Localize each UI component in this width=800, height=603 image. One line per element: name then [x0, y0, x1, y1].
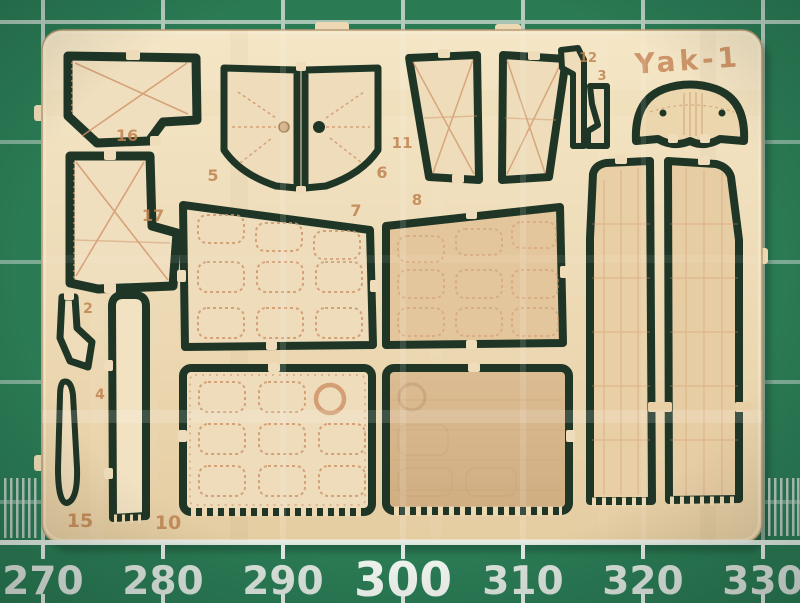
photo-of-pe-fret-on-cutting-mat: 16 17 2 4 15 10 5 6 7 8 11 12 3 Yak-1	[0, 0, 800, 603]
photo-vignette	[0, 0, 800, 603]
photo-canvas: 16 17 2 4 15 10 5 6 7 8 11 12 3 Yak-1	[0, 0, 800, 603]
